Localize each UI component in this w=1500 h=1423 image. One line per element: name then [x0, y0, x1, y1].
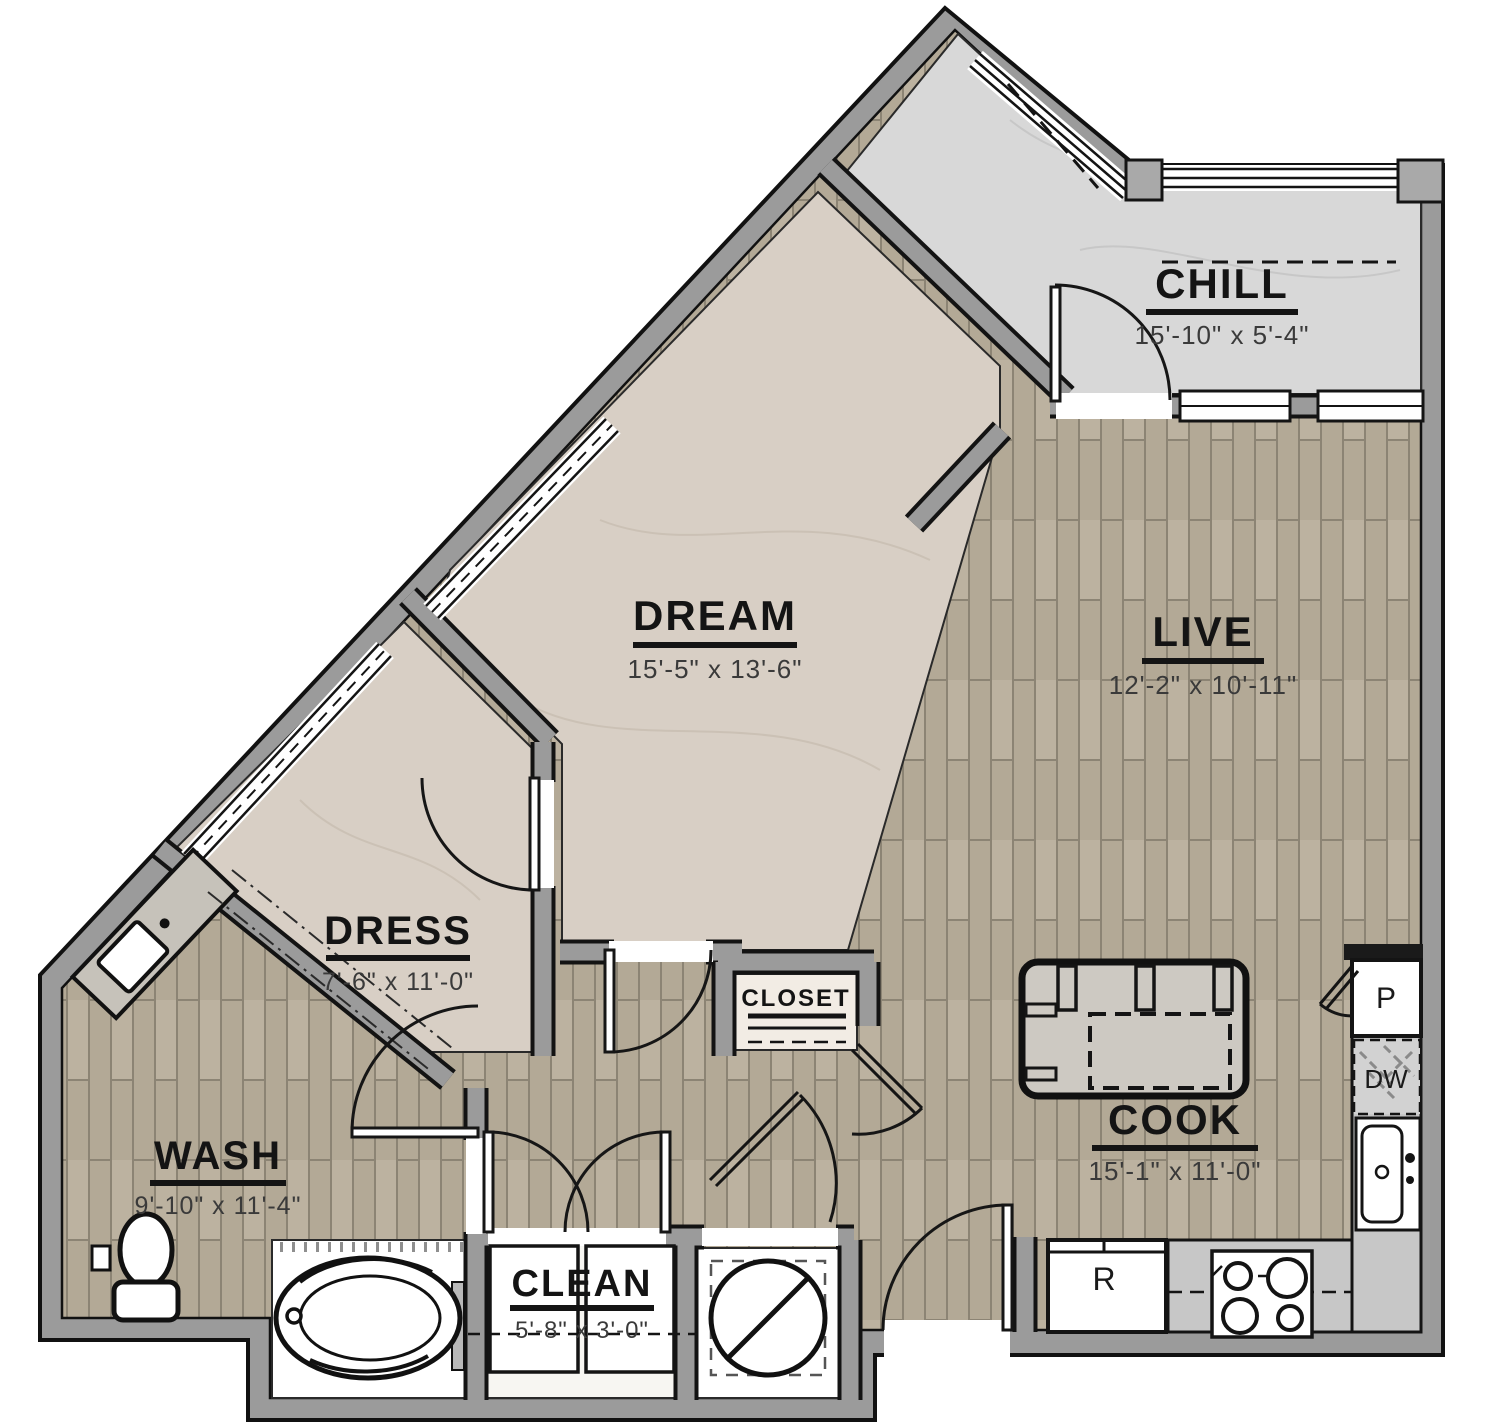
opening-clean-doors: [488, 1228, 666, 1246]
refrigerator: R: [1048, 1240, 1166, 1332]
svg-text:DRESS: DRESS: [324, 909, 472, 953]
water-heater: [711, 1261, 825, 1375]
dream-door-leaf: [605, 950, 614, 1052]
wash-door-leaf: [352, 1128, 478, 1137]
pantry-label: P: [1376, 982, 1396, 1015]
toilet: [114, 1214, 178, 1320]
chill-door-leaf: [1051, 287, 1060, 401]
opening-chill-door: [1056, 393, 1172, 419]
rail-post: [1126, 160, 1162, 200]
floorplan-svg: P DW R: [0, 0, 1500, 1423]
svg-text:CHILL: CHILL: [1155, 260, 1289, 307]
label-clean: CLEAN 5'-8" x 3'-0": [510, 1263, 654, 1344]
kitchen-sink: [1356, 1118, 1420, 1230]
label-dress: DRESS 7'-6" x 11'-0": [322, 909, 474, 996]
window-live-2: [1318, 391, 1423, 421]
refrigerator-label: R: [1092, 1261, 1115, 1297]
opening-dream-door: [609, 941, 713, 962]
label-cook: COOK 15'-1" x 11'-0": [1089, 1096, 1262, 1186]
dishwasher-label: DW: [1364, 1064, 1408, 1094]
svg-text:CLEAN: CLEAN: [512, 1263, 653, 1305]
svg-text:15'-1" x 11'-0": 15'-1" x 11'-0": [1089, 1156, 1262, 1186]
svg-text:DREAM: DREAM: [633, 592, 797, 639]
svg-text:CLOSET: CLOSET: [741, 985, 850, 1012]
entry-door-leaf: [1003, 1205, 1012, 1330]
toilet-paper-holder: [92, 1246, 110, 1270]
label-dream: DREAM 15'-5" x 13'-6": [628, 592, 803, 684]
opening-entry-door: [884, 1320, 1010, 1362]
label-closet: CLOSET: [741, 985, 850, 1012]
window-live-1: [1180, 391, 1290, 421]
label-chill: CHILL 15'-10" x 5'-4": [1135, 260, 1310, 350]
svg-text:15'-10" x 5'-4": 15'-10" x 5'-4": [1135, 320, 1310, 350]
stove: [1212, 1251, 1312, 1337]
opening-heater-door: [702, 1228, 838, 1246]
svg-text:WASH: WASH: [154, 1134, 282, 1178]
svg-text:15'-5" x 13'-6": 15'-5" x 13'-6": [628, 654, 803, 684]
clean-door-leaf-right: [661, 1132, 670, 1232]
rail-post: [1398, 160, 1443, 202]
svg-text:7'-6" x 11'-0": 7'-6" x 11'-0": [322, 968, 474, 996]
svg-text:LIVE: LIVE: [1152, 608, 1253, 655]
pantry-wall: [1344, 944, 1423, 960]
dress-door-leaf: [530, 778, 539, 890]
svg-text:12'-2" x 10'-11": 12'-2" x 10'-11": [1109, 670, 1297, 700]
svg-text:COOK: COOK: [1108, 1096, 1242, 1143]
svg-text:5'-8" x 3'-0": 5'-8" x 3'-0": [515, 1317, 649, 1344]
clean-door-leaf-left: [484, 1132, 493, 1232]
kitchen-island: [1022, 962, 1246, 1096]
svg-text:9'-10" x 11'-4": 9'-10" x 11'-4": [135, 1192, 302, 1220]
label-wash: WASH 9'-10" x 11'-4": [135, 1134, 302, 1220]
